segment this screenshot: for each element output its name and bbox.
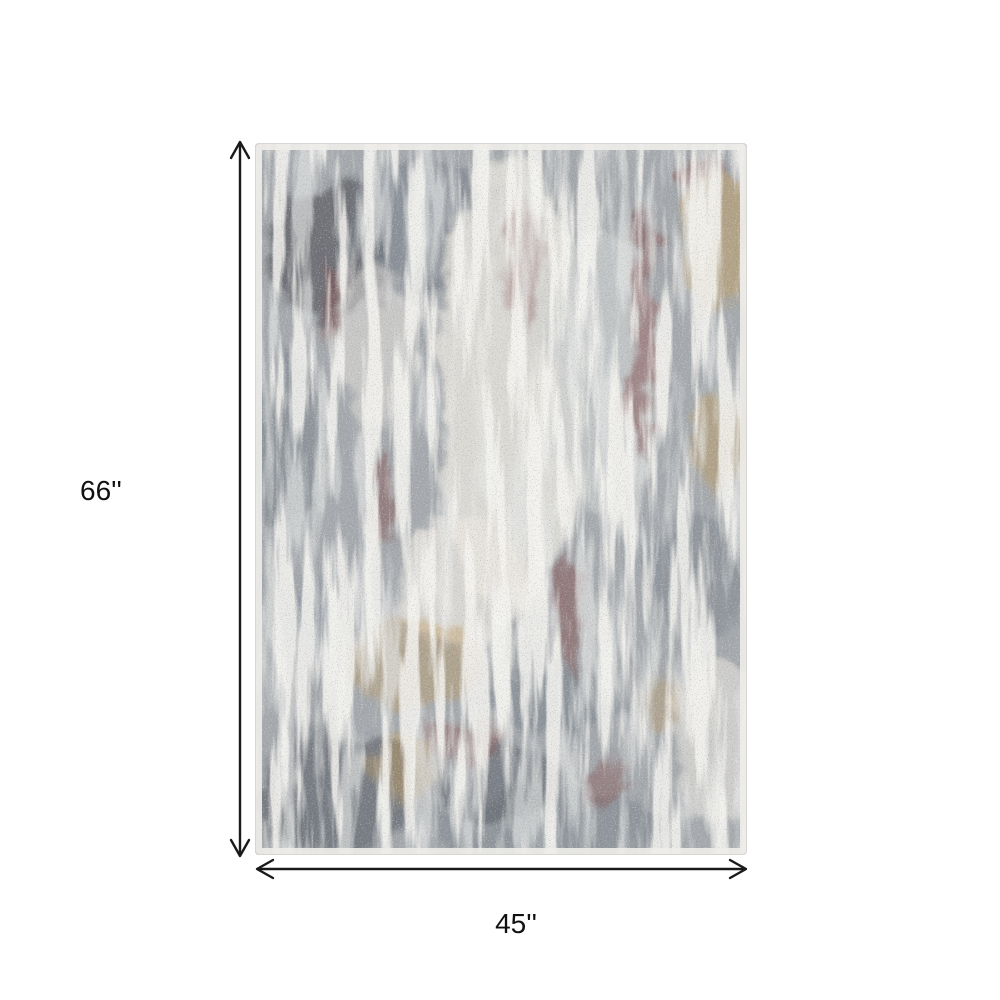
width-dimension-arrow [257,860,746,878]
rug-texture [255,143,747,855]
arrow-left-icon [257,860,273,878]
width-dimension-label: 45'' [468,907,564,940]
height-dimension-label: 66'' [80,474,122,507]
height-dimension-arrow [231,142,249,856]
arrow-down-icon [231,840,249,856]
arrow-up-icon [231,142,249,158]
product-dimension-diagram: 66'' 45'' [0,0,1000,1000]
arrow-right-icon [730,860,746,878]
rug-image [255,143,747,855]
rug-grain-light [255,143,747,855]
